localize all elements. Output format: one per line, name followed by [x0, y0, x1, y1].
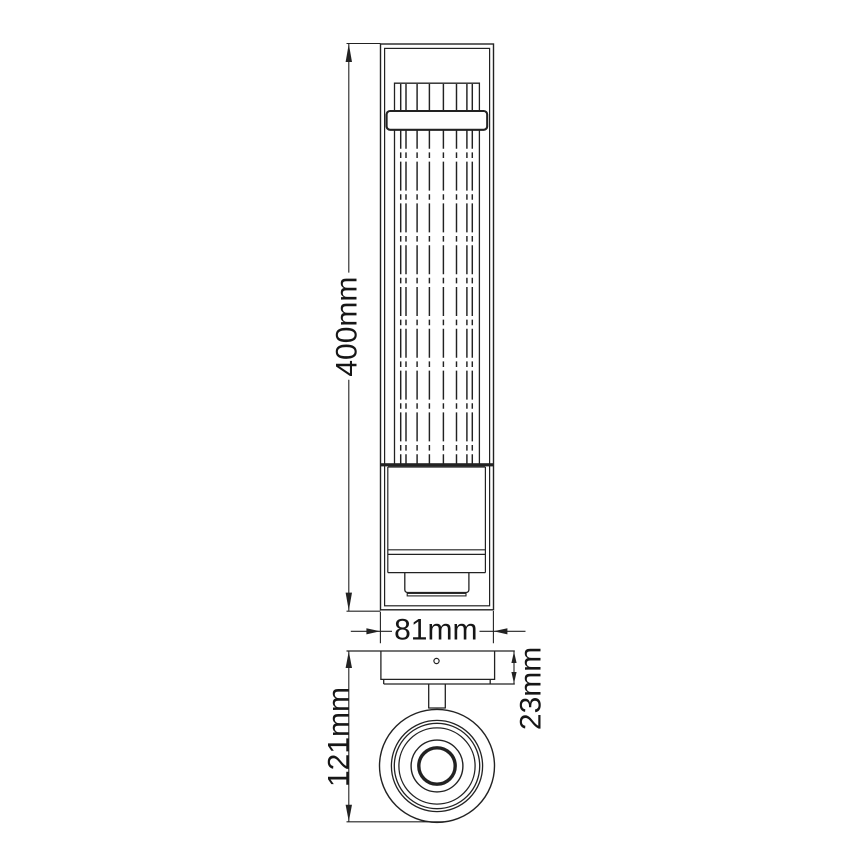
svg-text:400mm: 400mm [331, 277, 364, 377]
svg-text:121mm: 121mm [322, 687, 355, 787]
svg-text:81mm: 81mm [394, 614, 477, 647]
svg-text:23mm: 23mm [515, 647, 548, 730]
